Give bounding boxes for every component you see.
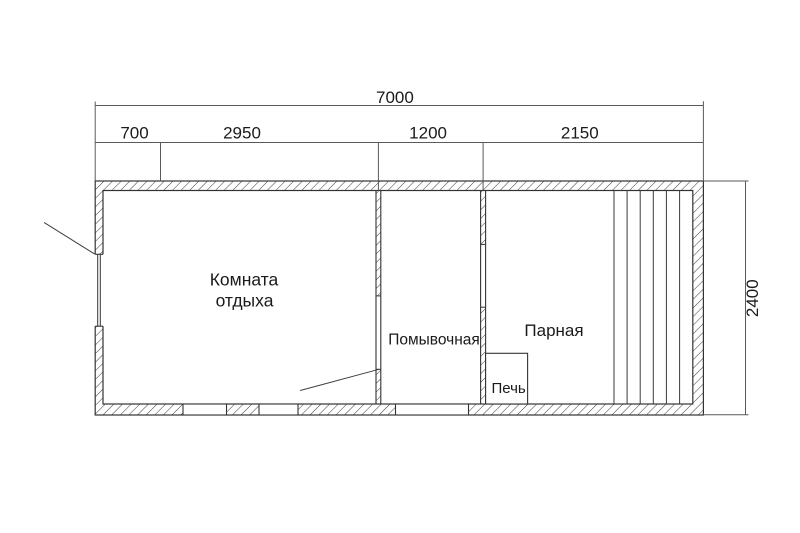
svg-text:2950: 2950: [223, 124, 261, 143]
svg-text:1200: 1200: [409, 124, 447, 143]
svg-text:2400: 2400: [743, 279, 762, 317]
svg-text:700: 700: [120, 124, 148, 143]
svg-text:2150: 2150: [561, 124, 599, 143]
svg-text:Комната: Комната: [210, 270, 279, 290]
svg-text:Печь: Печь: [491, 380, 525, 397]
svg-text:отдыха: отдыха: [216, 291, 274, 311]
svg-text:7000: 7000: [376, 88, 414, 107]
svg-text:Парная: Парная: [524, 321, 583, 340]
svg-text:Помывочная: Помывочная: [388, 332, 480, 349]
